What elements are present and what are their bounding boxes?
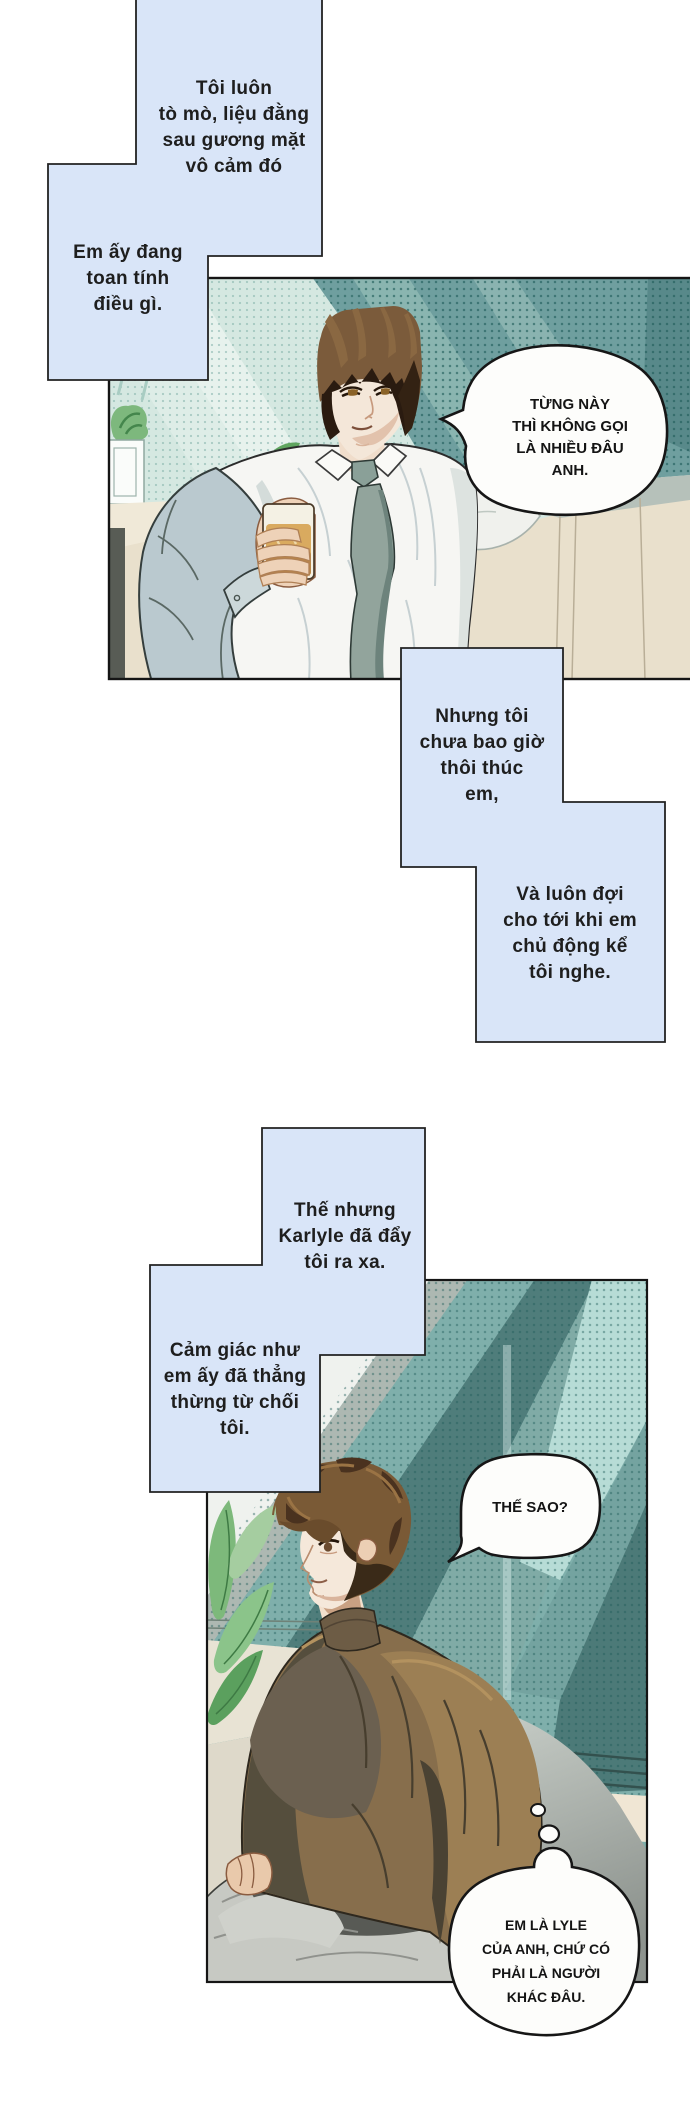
svg-text:tôi nghe.: tôi nghe.	[529, 962, 611, 983]
svg-text:Tôi luôn: Tôi luôn	[196, 78, 272, 99]
svg-text:Và luôn đợi: Và luôn đợi	[516, 884, 624, 905]
svg-text:tôi ra xa.: tôi ra xa.	[304, 1252, 385, 1273]
svg-text:Nhưng tôi: Nhưng tôi	[435, 706, 529, 727]
svg-text:EM LÀ LYLE: EM LÀ LYLE	[505, 1917, 587, 1933]
svg-text:TỪNG NÀY: TỪNG NÀY	[530, 395, 610, 413]
svg-text:Karlyle đã đẩy: Karlyle đã đẩy	[278, 1226, 411, 1247]
svg-text:CỦA ANH, CHỨ CÓ: CỦA ANH, CHỨ CÓ	[482, 1940, 610, 1957]
svg-text:KHÁC ĐÂU.: KHÁC ĐÂU.	[507, 1988, 586, 2005]
svg-text:cho tới khi em: cho tới khi em	[503, 910, 637, 931]
svg-text:em,: em,	[465, 784, 499, 805]
svg-text:tôi.: tôi.	[220, 1418, 250, 1439]
svg-text:PHẢI LÀ NGƯỜI: PHẢI LÀ NGƯỜI	[492, 1964, 600, 1981]
svg-text:điều gì.: điều gì.	[94, 294, 163, 315]
svg-text:tò mò, liệu đằng: tò mò, liệu đằng	[159, 103, 309, 125]
svg-text:Em ấy đang: Em ấy đang	[73, 242, 183, 263]
svg-text:sau gương mặt: sau gương mặt	[162, 130, 305, 151]
svg-text:vô cảm đó: vô cảm đó	[186, 156, 283, 177]
svg-text:Cảm giác như: Cảm giác như	[170, 1340, 300, 1361]
svg-text:chưa bao giờ: chưa bao giờ	[420, 732, 545, 753]
svg-text:THẾ SAO?: THẾ SAO?	[492, 1499, 568, 1516]
svg-text:ANH.: ANH.	[552, 462, 589, 479]
svg-text:Thế nhưng: Thế nhưng	[294, 1200, 396, 1221]
svg-text:thừng từ chối: thừng từ chối	[171, 1392, 300, 1413]
svg-text:em ấy đã thẳng: em ấy đã thẳng	[164, 1365, 307, 1387]
svg-text:thôi thúc: thôi thúc	[441, 758, 524, 779]
svg-text:toan tính: toan tính	[87, 268, 170, 289]
svg-text:chủ động kể: chủ động kể	[512, 936, 627, 957]
svg-text:LÀ NHIỀU ĐÂU: LÀ NHIỀU ĐÂU	[516, 439, 624, 457]
svg-text:THÌ KHÔNG GỌI: THÌ KHÔNG GỌI	[512, 417, 628, 435]
